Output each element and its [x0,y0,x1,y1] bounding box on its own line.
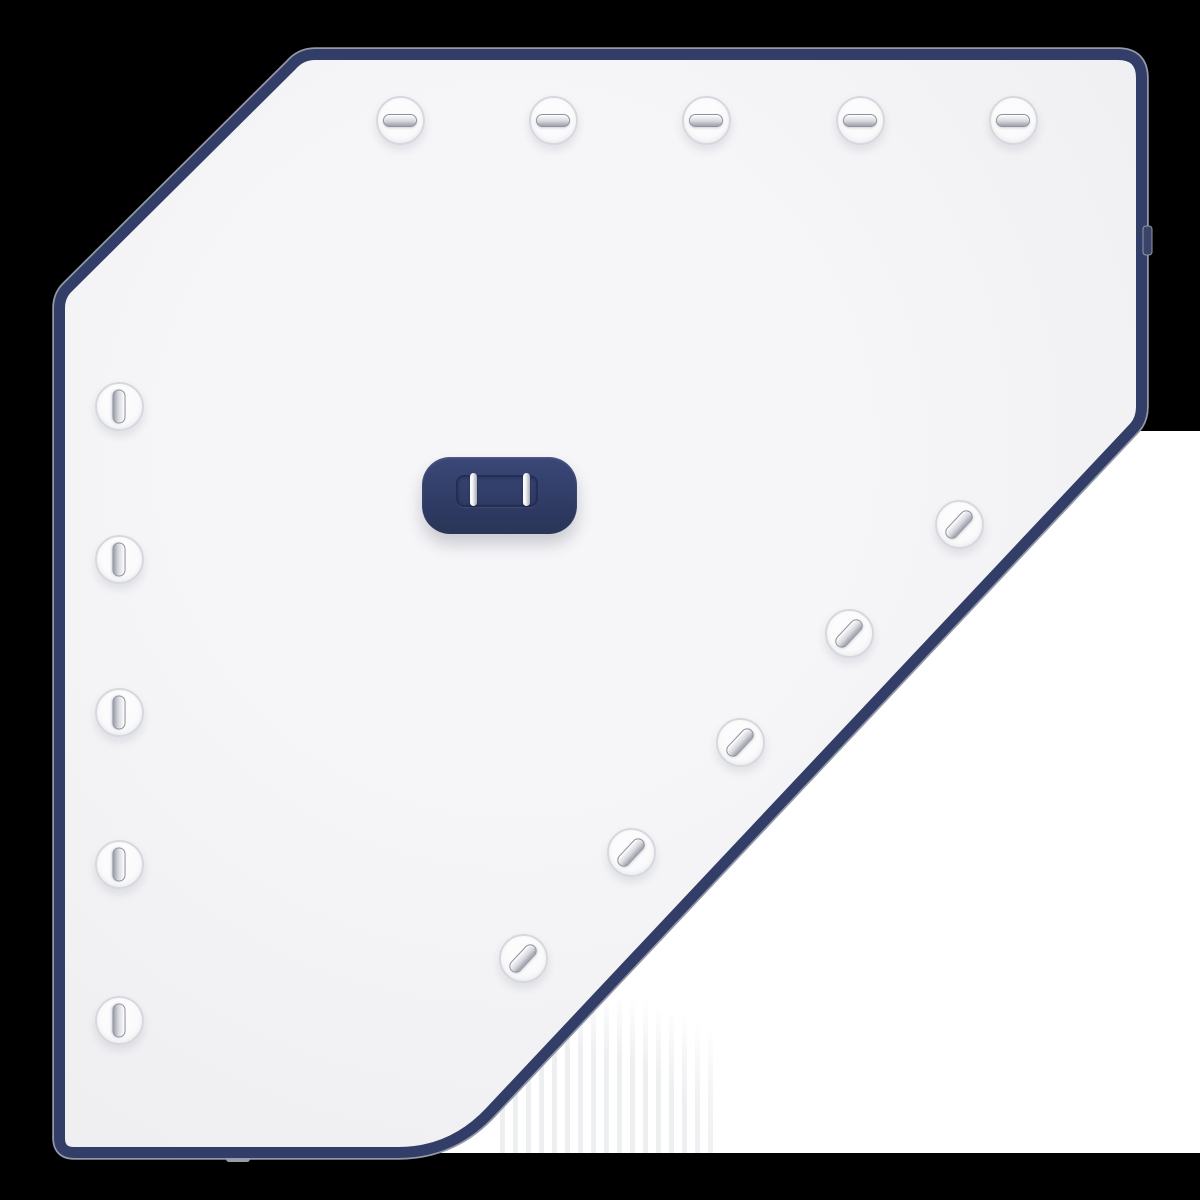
snap-fastener [989,96,1038,145]
snap-fastener [529,96,578,145]
snap-fastener [95,996,144,1045]
fastener-bar [843,114,877,127]
snap-fastener [95,535,144,584]
snap-fastener [607,828,656,877]
fastener-bar [113,847,126,881]
fastener-bar [536,114,570,127]
snap-fastener [836,96,885,145]
fastener-bar [615,835,648,869]
buckle-pin [470,473,477,506]
snap-fastener [95,382,144,431]
fastener-bar [996,114,1030,127]
cover-panel [0,0,1200,1200]
product-photo [0,0,1200,1200]
snap-fastener [935,500,984,549]
snap-fastener [716,718,765,767]
snap-fastener [95,840,144,889]
snap-fastener [825,609,874,658]
fastener-bar [943,507,976,541]
fastener-bar [833,616,866,650]
fastener-bar [113,695,126,729]
panel-body [60,55,1142,1153]
fastener-bar [113,542,126,576]
snap-fastener [376,96,425,145]
snap-fastener [499,934,548,983]
fastener-bar [383,114,417,127]
buckle-pin [523,473,530,506]
fastener-bar [724,725,757,759]
fastener-bar [689,114,723,127]
snap-fastener [682,96,731,145]
edge-tab [1143,226,1152,255]
fastener-bar [113,1003,126,1037]
strap-buckle [422,457,577,534]
snap-fastener [95,688,144,737]
fastener-bar [113,389,126,423]
fastener-bar [507,941,540,975]
